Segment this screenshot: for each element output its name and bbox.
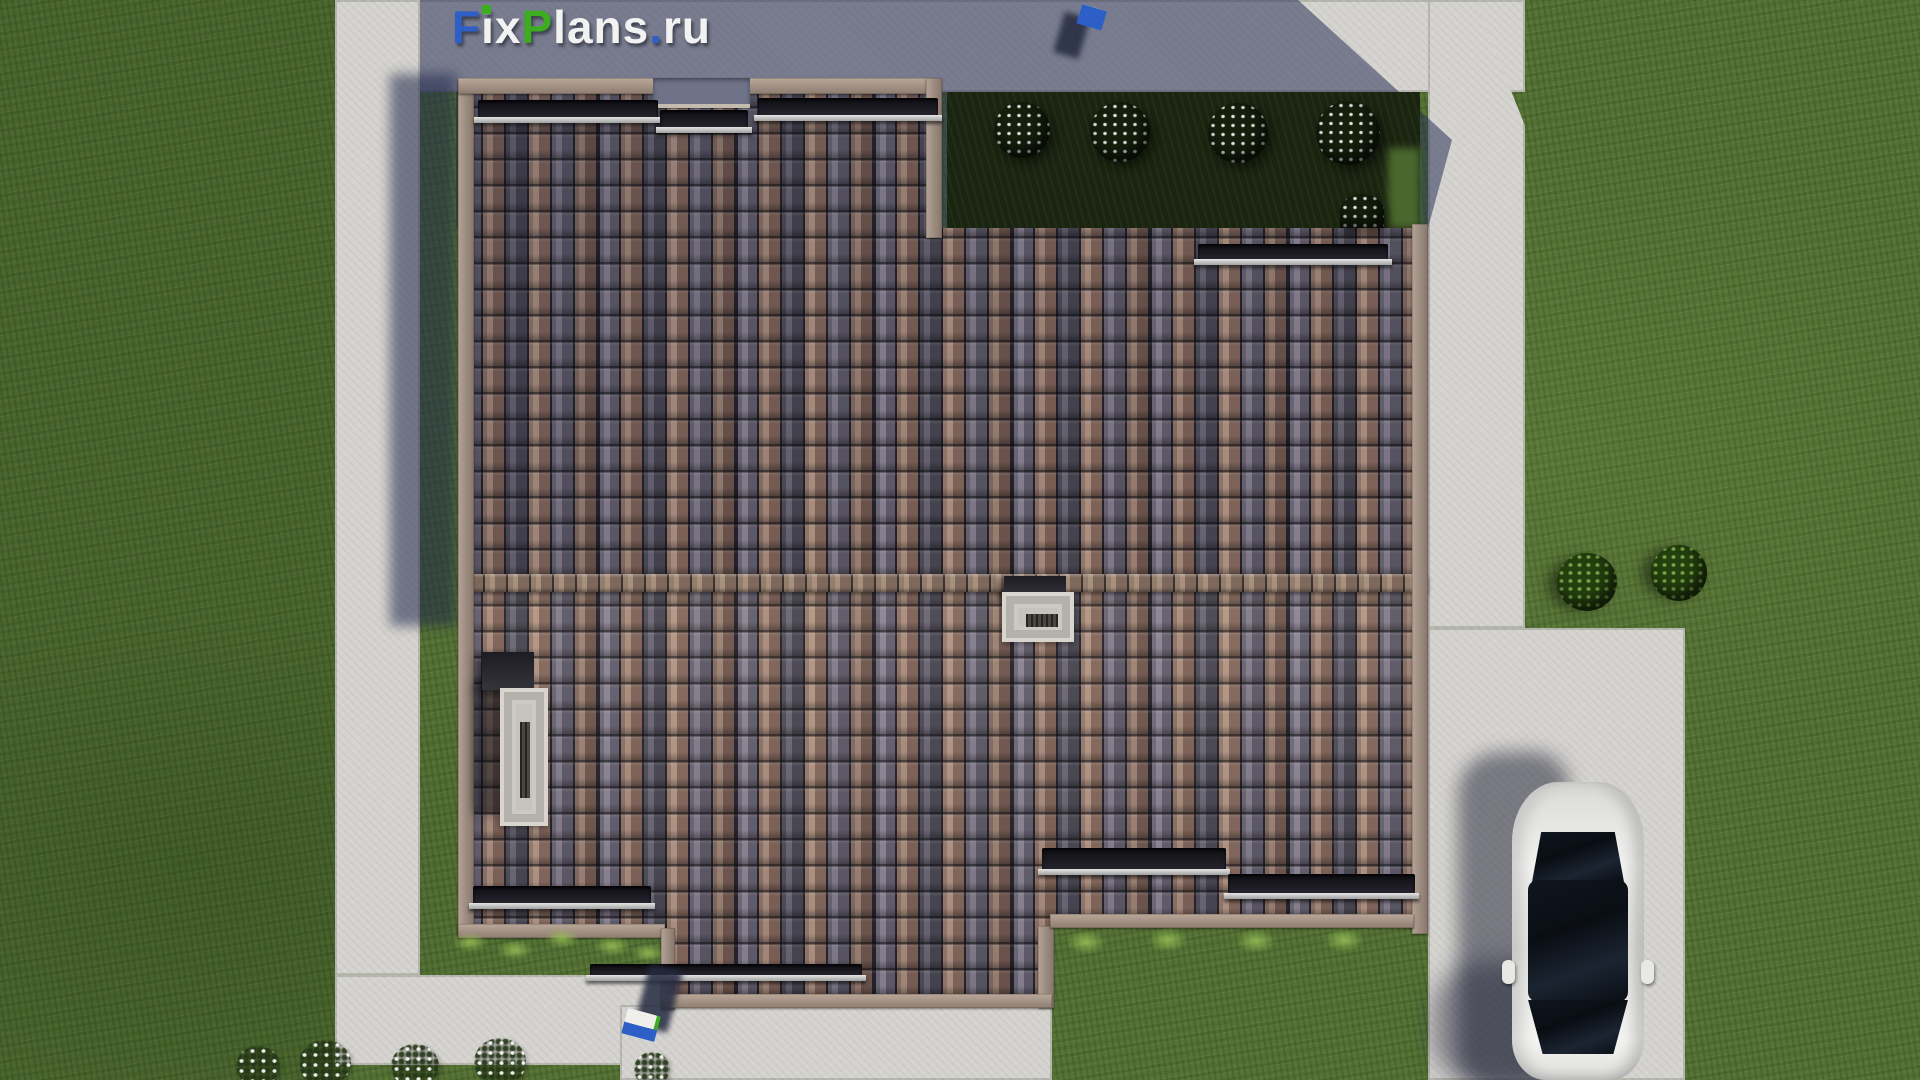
grass-tuft [1066, 930, 1106, 954]
grass-tuft [1148, 928, 1188, 952]
roof-ridge [460, 574, 1428, 592]
roof-vent [1042, 848, 1226, 870]
car-mirror [1502, 960, 1515, 984]
flower-cluster [474, 1038, 526, 1080]
green-bush [1651, 545, 1707, 601]
flower-cluster [299, 1040, 351, 1080]
pavement-right-band [1428, 0, 1525, 628]
roof-vent [1198, 244, 1388, 260]
flower-cluster [391, 1044, 439, 1080]
roof-fascia-porch-bottom [661, 994, 1052, 1008]
flower-cluster [236, 1046, 280, 1080]
green-bush [1557, 553, 1617, 611]
roof-vent [660, 110, 748, 128]
flower-bush [1090, 102, 1150, 162]
chimney [500, 688, 548, 826]
roof-fascia-left [458, 80, 474, 938]
car-windshield [1526, 1000, 1630, 1054]
roof-vent [758, 98, 938, 116]
logo-letter: ru [663, 1, 711, 53]
roof-fascia-eave-right [1050, 914, 1414, 928]
garden-bed-sunlit-edge [1388, 148, 1420, 228]
logo-letter: i [481, 0, 495, 54]
chimney-grill [1026, 614, 1058, 627]
chimney-cap [482, 652, 534, 690]
grass-tuft [1236, 929, 1276, 953]
watermark-logo: FixPlans.ru [452, 0, 711, 58]
roof-vent [1228, 874, 1415, 894]
roof-eave-notch [653, 78, 750, 108]
car-roof-glass [1528, 880, 1628, 1002]
flower-bush [1340, 194, 1384, 228]
grass-tuft [497, 940, 533, 960]
roof-vent [478, 100, 658, 118]
grass-tuft [594, 936, 630, 956]
grass-tuft [632, 944, 664, 962]
roof-vent [473, 886, 651, 904]
grass-tuft [1324, 928, 1364, 952]
car-rear-window [1532, 832, 1624, 882]
grass-tuft [452, 932, 488, 952]
grass-tuft [544, 928, 580, 948]
flower-bush [994, 102, 1050, 158]
lawn-shaded-left [0, 0, 335, 1080]
logo-letter: P [521, 1, 553, 53]
chimney [1002, 592, 1074, 642]
aerial-house-render: FixPlans.ru [0, 0, 1920, 1080]
car-mirror [1641, 960, 1654, 984]
roof-fascia-right [1412, 224, 1428, 934]
chimney-grill [520, 722, 530, 798]
building-cast-shadow-left [390, 74, 456, 626]
logo-letter: x [495, 1, 522, 53]
car [1512, 782, 1644, 1080]
logo-letter: lans [553, 1, 649, 53]
roof-vent [590, 964, 862, 976]
logo-letter: F [452, 1, 481, 53]
logo-letter: . [649, 1, 663, 53]
